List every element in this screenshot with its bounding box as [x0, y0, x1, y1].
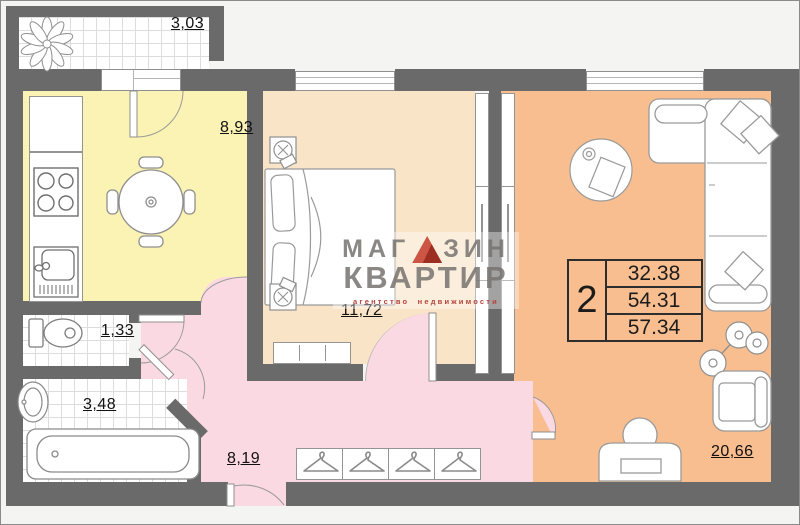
bathroom-door-leaf — [139, 345, 174, 380]
toilet-icon — [25, 313, 87, 355]
bedroom-door-leaf — [429, 313, 436, 381]
bathtub-icon — [25, 427, 203, 483]
living-area-value: 32.38 — [606, 260, 702, 287]
hanger-icon — [434, 448, 481, 480]
balcony-door-arc — [137, 91, 183, 137]
dresser-icon — [273, 342, 351, 364]
living-area-label: 20,66 — [711, 443, 754, 461]
bathroom-area-label: 3,48 — [83, 396, 116, 414]
kitchen-door-arc — [201, 277, 247, 303]
tv-icon — [267, 279, 299, 313]
plant-icon — [21, 18, 73, 70]
kitchen-sink-icon — [32, 245, 80, 299]
dining-table-icon — [105, 155, 197, 249]
watermark-brand-right: ЗИН — [443, 237, 510, 262]
washbasin-icon — [17, 379, 57, 425]
floor-plan: 3,03 8,93 11,72 1,33 3,48 8,19 20,66 2 3… — [0, 0, 800, 525]
balcony-door-leaf — [130, 91, 137, 137]
apartment-info-table: 2 32.38 54.31 57.34 — [567, 259, 703, 342]
bathroom-door-arc — [175, 349, 205, 399]
entrance-door-leaf — [227, 484, 234, 506]
watermark-tagline: агентство недвижимости — [353, 297, 499, 306]
kitchen-cabinet — [29, 96, 83, 152]
coffee-table-icon — [564, 133, 638, 207]
hall-area-label: 8,19 — [227, 450, 260, 468]
watermark-brand-line1: МАГ ЗИН — [342, 236, 510, 262]
rooms-count: 2 — [568, 260, 606, 341]
armchair-icon — [707, 363, 777, 435]
toilet-area-label: 1,33 — [101, 322, 134, 340]
toilet-door-leaf — [139, 315, 184, 322]
red-triangle-icon — [412, 236, 442, 263]
balcony-area-label: 3,03 — [171, 15, 204, 33]
hanger-icon — [296, 448, 343, 480]
entrance-door-arc — [234, 485, 284, 505]
tv-icon — [267, 134, 299, 168]
agency-watermark: МАГ ЗИН КВАРТИР агентство недвижимости — [333, 232, 519, 309]
hanger-icon — [342, 448, 389, 480]
total-area-value: 57.34 — [606, 314, 702, 341]
watermark-brand-line2: КВАРТИР — [343, 262, 508, 295]
apartment-area-value: 54.31 — [606, 287, 702, 314]
hanger-icon — [388, 448, 435, 480]
watermark-brand-left: МАГ — [342, 237, 410, 262]
stove-icon — [32, 166, 80, 218]
desk-chair-icon — [591, 411, 691, 483]
living-door-leaf — [532, 432, 555, 439]
kitchen-area-label: 8,93 — [220, 119, 253, 137]
